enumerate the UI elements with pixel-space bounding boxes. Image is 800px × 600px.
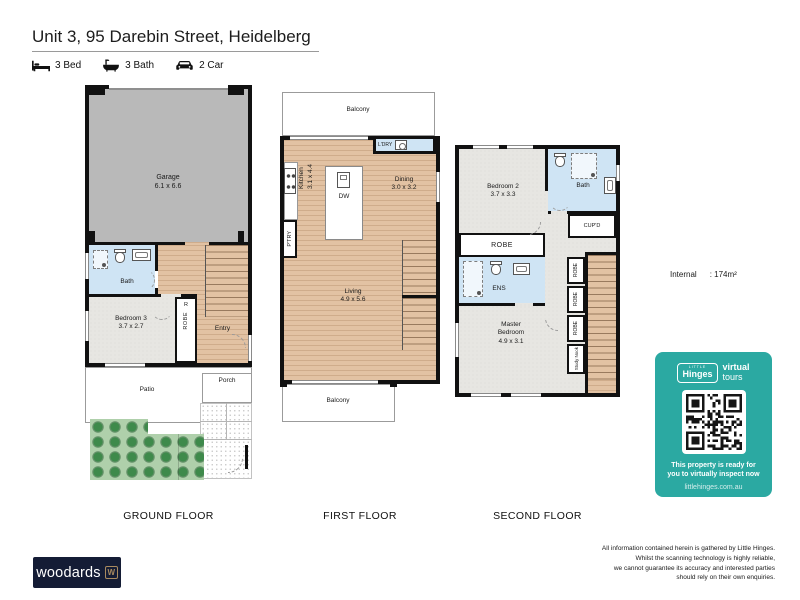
- balcony-bottom-label: Balcony: [283, 397, 393, 405]
- robe-2: ROBE: [567, 286, 585, 313]
- dishwasher-label: DW: [326, 193, 362, 201]
- feature-beds: 3 Bed: [32, 60, 81, 72]
- feature-cars-label: 2 Car: [199, 60, 223, 71]
- toilet-icon-2: [553, 153, 567, 167]
- virtual-tour-card: LITTLE Hinges virtual tours This propert…: [655, 352, 772, 497]
- shower-icon-2: [571, 153, 597, 179]
- ground-robe-closet: R ROBE: [175, 297, 197, 363]
- robe-band: ROBE: [459, 233, 545, 257]
- washing-machine-icon: [395, 140, 407, 150]
- robe-1: ROBE: [567, 257, 585, 284]
- island-bench: DW: [325, 166, 363, 240]
- hinges-logo-bubble: LITTLE Hinges: [677, 363, 717, 383]
- sink-icon: [132, 249, 151, 261]
- robe-3: ROBE: [567, 315, 585, 342]
- sink-icon-2: [604, 177, 616, 194]
- gate-post: [245, 445, 248, 469]
- patio-label: Patio: [117, 386, 177, 394]
- page-title: Unit 3, 95 Darebin Street, Heidelberg: [32, 27, 311, 47]
- title-divider: [32, 51, 319, 52]
- woodards-wordmark: woodards: [36, 565, 100, 581]
- bed-icon: [32, 60, 50, 72]
- floor-caption-first: FIRST FLOOR: [280, 510, 440, 522]
- entry-label: Entry: [197, 325, 248, 333]
- laundry-nook: L'DRY: [373, 136, 436, 154]
- woodards-logo-mark: W: [105, 566, 118, 579]
- dining-label: Dining 3.0 x 3.2: [372, 176, 436, 193]
- internal-area-label: Internal: [670, 270, 697, 279]
- dishwasher-icon: [337, 172, 350, 188]
- ground-floor-plan: Garage 6.1 x 6.6 Bath Entry Bedroom 3 3.…: [85, 85, 252, 497]
- virtual-tour-message: This property is ready for you to virtua…: [655, 461, 772, 481]
- pantry: P'TRY: [282, 220, 297, 258]
- floor-caption-ground: GROUND FLOOR: [85, 510, 252, 522]
- feature-baths: 3 Bath: [102, 59, 154, 72]
- stove-icon: [284, 168, 296, 194]
- ground-robe-label: ROBE: [183, 312, 189, 330]
- master-bedroom-label: Master Bedroom 4.9 x 3.1: [473, 321, 549, 346]
- kitchen-label: Kitchen 3.1 x 4.4: [298, 164, 314, 189]
- internal-area-value: : 174m²: [710, 270, 737, 279]
- second-stairs-landing: [588, 380, 616, 393]
- ground-stairs: [205, 245, 248, 317]
- internal-area: Internal : 174m²: [670, 270, 737, 279]
- bedroom2-label: Bedroom 2 3.7 x 3.3: [463, 183, 543, 200]
- floor-caption-second: SECOND FLOOR: [455, 510, 620, 522]
- woodards-logo: woodards W: [33, 557, 121, 588]
- virtual-tours-wordmark: virtual tours: [723, 363, 750, 382]
- cupboard: CUP'D: [568, 214, 616, 238]
- garage-room: [89, 89, 248, 242]
- garage-label: Garage 6.1 x 6.6: [118, 173, 218, 191]
- garden-bed: [90, 434, 204, 480]
- ensuite-label: ENS: [479, 285, 519, 293]
- bedroom3-label: Bedroom 3 3.7 x 2.7: [93, 315, 169, 332]
- little-hinges-logo: LITTLE Hinges virtual tours: [655, 363, 772, 383]
- balcony-top-label: Balcony: [283, 106, 433, 114]
- first-stairs-lower: [402, 298, 436, 350]
- robe-r-label: R: [184, 302, 188, 308]
- second-floor-plan: Bedroom 2 3.7 x 3.3 Bath CUP'D ROBE ENS …: [455, 145, 620, 400]
- porch-label: Porch: [203, 377, 251, 385]
- qr-code: [682, 390, 746, 454]
- balcony-top: Balcony: [282, 92, 435, 136]
- study-nook: Study Nook: [567, 344, 585, 374]
- first-floor-plan: Balcony L'DRY Kitchen 3.1 x 4.4 DW P'TRY…: [280, 92, 440, 422]
- porch-area: Porch: [202, 373, 252, 403]
- balcony-bottom: Balcony: [282, 384, 395, 422]
- feature-baths-label: 3 Bath: [125, 60, 154, 71]
- toilet-icon: [113, 249, 127, 263]
- second-bath-label: Bath: [565, 182, 601, 190]
- feature-row: 3 Bed 3 Bath 2 Car: [32, 59, 224, 72]
- sink-icon-3: [513, 263, 530, 275]
- toilet-icon-3: [489, 261, 503, 275]
- second-stairs: [588, 255, 616, 380]
- feature-cars: 2 Car: [175, 60, 223, 72]
- living-label: Living 4.9 x 5.6: [318, 288, 388, 305]
- page-background: { "header": { "title": "Unit 3, 95 Dareb…: [0, 0, 800, 600]
- first-stairs-upper: [402, 240, 436, 295]
- garage-door: [109, 85, 228, 90]
- shower-icon: [93, 250, 108, 269]
- car-icon: [175, 60, 194, 72]
- garden-strip: [90, 419, 148, 434]
- disclaimer-text: All information contained herein is gath…: [475, 544, 775, 583]
- feature-beds-label: 3 Bed: [55, 60, 81, 71]
- bath-icon: [102, 59, 120, 72]
- laundry-label: L'DRY: [378, 142, 392, 148]
- virtual-tour-website: littlehinges.com.au: [655, 484, 772, 491]
